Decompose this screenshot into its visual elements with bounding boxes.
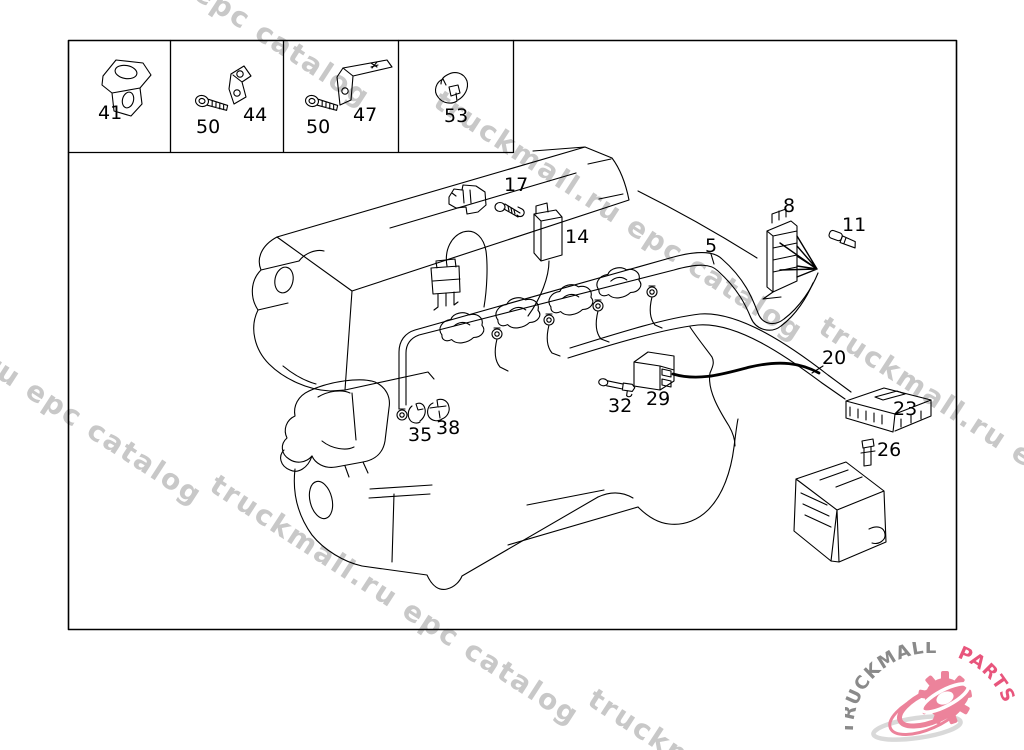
table-part-number: 53 bbox=[444, 107, 468, 126]
table-part-number: 44 bbox=[243, 106, 267, 125]
part-50-screw-b bbox=[304, 94, 338, 112]
part-callout: 38 bbox=[436, 419, 460, 438]
part-23-connector bbox=[846, 388, 931, 432]
part-53-clamp bbox=[436, 73, 468, 104]
part-callout: 35 bbox=[408, 426, 432, 445]
catalog-page: truckmall.ru epc catalogtruckmall.ru epc… bbox=[0, 0, 1024, 750]
part-29-connector bbox=[634, 352, 674, 390]
table-part-number: 50 bbox=[306, 118, 330, 137]
part-44-bracket bbox=[229, 66, 251, 104]
part-35-clip bbox=[408, 403, 425, 423]
engine-outline bbox=[252, 147, 757, 589]
part-14-module bbox=[528, 203, 562, 316]
ring-terminal-pigtails bbox=[492, 286, 662, 371]
table-part-number: 41 bbox=[98, 104, 122, 123]
part-26-pin bbox=[861, 439, 875, 466]
part-50-screw-a bbox=[194, 94, 228, 112]
diagram-line-art bbox=[0, 0, 1024, 750]
part-callout: 8 bbox=[783, 197, 795, 216]
part-47-bracket bbox=[337, 60, 392, 105]
part-callout: 32 bbox=[608, 397, 632, 416]
part-callout: 29 bbox=[646, 390, 670, 409]
alternator-drawing bbox=[281, 380, 390, 477]
parts-table-grid bbox=[69, 41, 514, 153]
connector-clip-row bbox=[438, 265, 642, 346]
plug-connector bbox=[431, 231, 487, 310]
table-part-number: 50 bbox=[196, 118, 220, 137]
part-callout: 5 bbox=[705, 237, 717, 256]
relay-box-drawing bbox=[794, 462, 886, 562]
part-callout: 20 bbox=[822, 349, 846, 368]
table-part-number: 47 bbox=[353, 106, 377, 125]
part-callout: 17 bbox=[504, 176, 528, 195]
part-callout: 14 bbox=[565, 228, 589, 247]
part-callout: 23 bbox=[893, 400, 917, 419]
part-8-connector bbox=[763, 209, 817, 299]
truckmall-logo: TRUCKMALL PARTS bbox=[845, 642, 1024, 750]
part-callout: 26 bbox=[877, 441, 901, 460]
part-callout: 11 bbox=[842, 216, 866, 235]
